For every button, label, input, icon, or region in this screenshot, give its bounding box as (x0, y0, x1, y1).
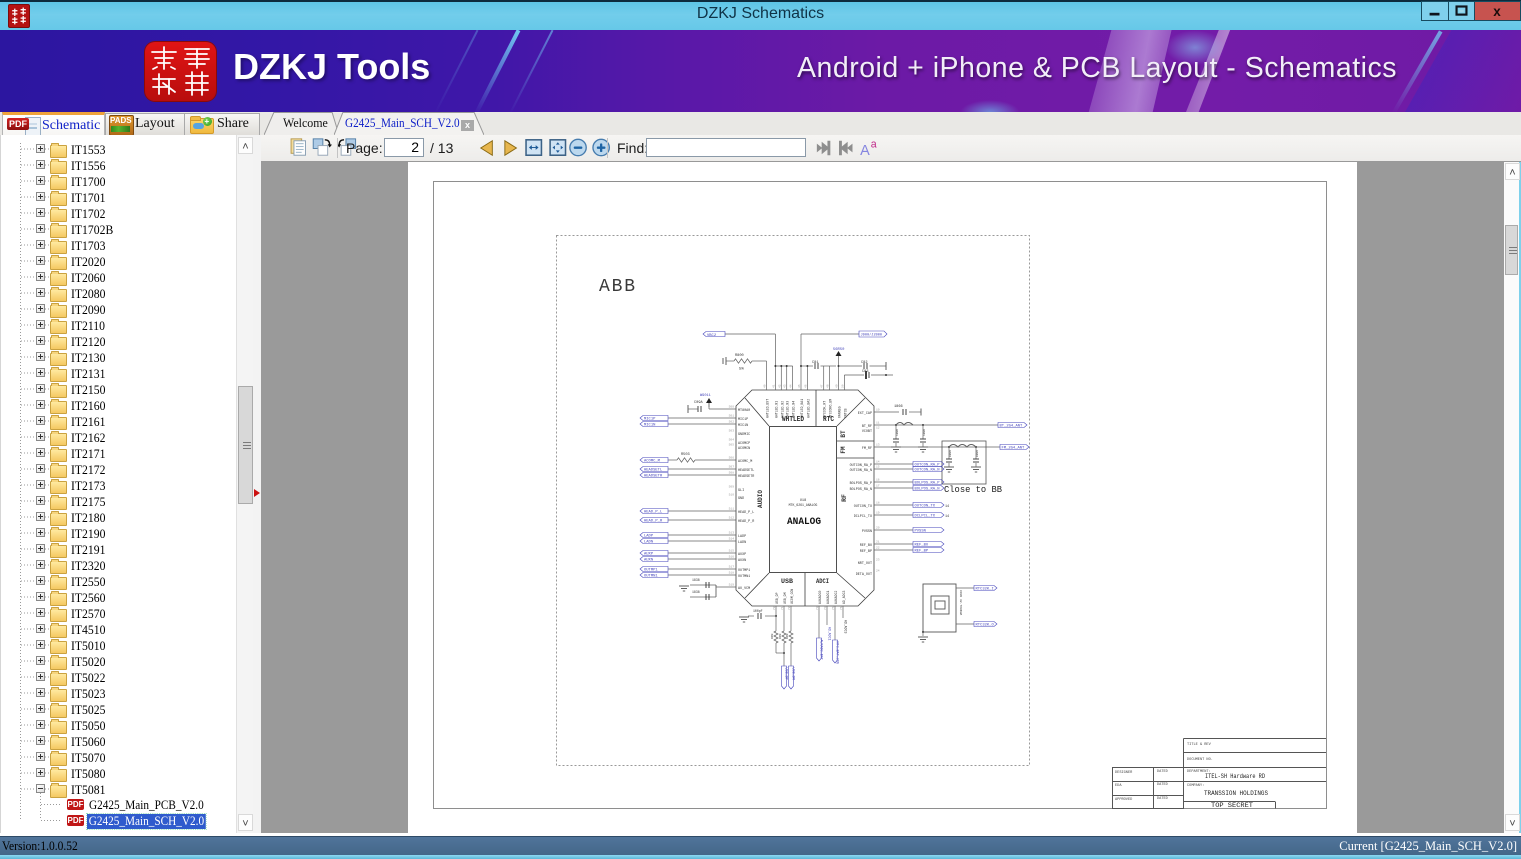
svg-text:A: A (860, 143, 870, 159)
svg-text:a: a (871, 139, 877, 151)
svg-text:x: x (1493, 4, 1501, 19)
